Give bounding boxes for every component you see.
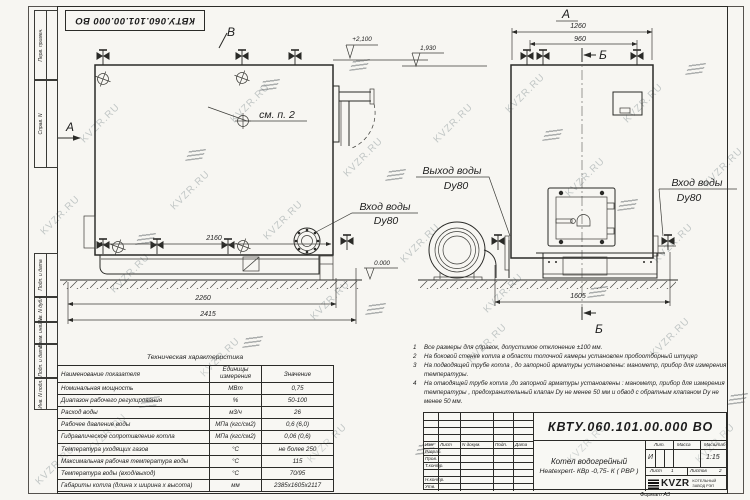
door-sight-glass (577, 215, 590, 227)
dim-1605: 1605 (570, 293, 586, 300)
product-name-line2: Heatexpert- КВр -0,75- К ( РВР ) (539, 468, 638, 475)
company-name-line1: КОТЕЛЬНЫЙ (692, 479, 716, 484)
margin-box: Подп. и дата (34, 344, 58, 378)
tb-header-podp: Подп. (495, 442, 507, 447)
elevation-1930: 1,930 (402, 45, 487, 66)
col-header-name: Наименование показателя (58, 366, 210, 382)
dim-960: 960 (574, 36, 586, 43)
company-logo: KVZR КОТЕЛЬНЫЙ ЗАВОД РЭП (648, 477, 726, 490)
tb-scale-value: 1:15 (706, 454, 720, 461)
dim-2415: 2415 (199, 311, 216, 318)
dim-1260: 1260 (570, 23, 586, 30)
tb-sheet-label: Лист (650, 468, 662, 473)
section-letter: В (227, 25, 235, 39)
panel (613, 92, 642, 115)
tb-header-list: Лист (440, 442, 452, 447)
product-name: Котел водогрейный Heatexpert- КВр -0,75-… (533, 441, 646, 491)
elevation-2100: +2,100 (333, 36, 428, 60)
ground-hatch (420, 281, 676, 289)
furnace-door (548, 188, 615, 246)
flue-elbow (333, 86, 375, 148)
side-view: Выход воды Dy80 Вход воды Dy80 1260 (416, 7, 737, 336)
table-row: Максимальная рабочая температура воды°С1… (58, 455, 333, 467)
table-row: Расход водым3/ч26 (58, 406, 333, 418)
kvzr-logo-text: KVZR (661, 478, 689, 489)
margin-box: Инв. N подл. (34, 378, 58, 410)
tb-header-izm: Изм (425, 442, 434, 447)
valve-icon (492, 235, 505, 250)
ground-hatch (63, 281, 359, 289)
position-mark-icon (93, 69, 114, 90)
fan-duct (484, 235, 509, 278)
tech-table-header: Наименование показателя Единицыизмерения… (58, 366, 333, 382)
tech-table: Наименование показателя Единицыизмерения… (57, 365, 334, 492)
section-b-marker-top: Б (582, 48, 607, 62)
table-row: Диапазон рабочего регулирования%50-100 (58, 394, 333, 406)
tb-prov: Пров. (425, 456, 437, 461)
section-letter: А (65, 120, 74, 134)
tb-lit-label: Лит. (654, 442, 665, 447)
tb-razrab: Разраб. (425, 449, 442, 454)
margin-label: Инв. N подл. (38, 379, 44, 408)
section-a-top-right: А (556, 7, 578, 21)
valve-icon (662, 235, 675, 250)
product-name-line1: Котел водогрейный (551, 457, 627, 466)
tb-header-ndocum: N докум. (462, 442, 481, 447)
tb-nkontr: Н.контр. (425, 477, 444, 482)
front-inlet-label: Вход воды Dy80 (316, 201, 418, 232)
margin-label: Подп. и дата (38, 345, 44, 376)
elevation-text: 0.000 (374, 260, 390, 267)
section-letter: А (561, 7, 570, 21)
col-header-value: Значение (262, 366, 333, 382)
outlet-label-line1: Выход воды (422, 165, 481, 177)
valve-icon (537, 50, 550, 65)
table-row: Габариты котла (длина х ширина х высота)… (58, 479, 333, 491)
callout-see-note-2: см. п. 2 (208, 107, 307, 129)
section-letter: Б (595, 322, 603, 336)
valve-icon (631, 50, 644, 65)
table-row: Гидравлическое сопротивление котлаМПа (к… (58, 430, 333, 442)
note-item: 1Все размеры для справок, допустимое отк… (413, 344, 735, 353)
tb-tkontr: Т.контр. (425, 463, 444, 468)
side-outlet-label: Выход воды Dy80 (416, 165, 510, 236)
table-row: Номинальная мощностьМВт0,75 (58, 382, 333, 394)
table-row: Рабочее давление водыМПа (кгс/см2)0,6 (6… (58, 418, 333, 430)
valve-icon (151, 239, 164, 254)
inlet-label-line1: Вход воды (672, 177, 723, 189)
valve-icon (236, 50, 249, 65)
fan-blower (429, 222, 485, 280)
position-mark-icon (233, 236, 254, 257)
section-a-left: А (58, 120, 80, 138)
table-row: Температура воды (вход/выход)°С70/95 (58, 467, 333, 479)
note-item: 2На боковой стенке котла в области топоч… (413, 353, 735, 362)
inlet-label-line2: Dy80 (374, 215, 399, 227)
note-item: 3На подводящей трубе котла , до запорной… (413, 362, 735, 380)
note-item: 4На отводящей трубе котла ,до запорной а… (413, 380, 735, 407)
valve-icon (222, 239, 235, 254)
tb-utv: Утв. (425, 484, 435, 489)
valve-icon (341, 235, 354, 250)
tb-header-data: Дата (515, 442, 527, 447)
dim-2260: 2260 (194, 295, 211, 302)
inlet-label-line1: Вход воды (360, 201, 411, 213)
col-header-units: Единицыизмерения (210, 366, 262, 382)
table-row: Температура уходящих газов°Сне более 250 (58, 443, 333, 455)
section-letter: Б (599, 48, 607, 62)
position-mark-icon (232, 68, 253, 89)
valve-icon (289, 50, 302, 65)
elevation-text: +2,100 (352, 36, 372, 43)
notes: 1Все размеры для справок, допустимое отк… (413, 344, 735, 407)
callout-text: см. п. 2 (259, 109, 295, 121)
valve-icon (521, 50, 534, 65)
dim-2160: 2160 (205, 235, 222, 242)
position-mark-icon (108, 237, 129, 258)
tb-sheets-label: Листов (690, 468, 707, 473)
tb-lit-value: И (648, 454, 653, 461)
tb-sheet-value: 1 (671, 468, 674, 473)
tb-scale-label: Масштаб (704, 442, 725, 447)
valve-icon (97, 50, 110, 65)
elevation-text: 1,930 (420, 45, 436, 52)
side-inlet: Вход воды Dy80 (653, 177, 737, 256)
outlet-label-line2: Dy80 (444, 180, 469, 192)
elevation-0000: 0.000 (364, 260, 398, 279)
company-name-line2: ЗАВОД РЭП (692, 484, 716, 489)
position-mark-icon (235, 113, 251, 129)
drawing-sheet: KVZR.RU KVZR.RU KVZR.RU KVZR.RU KVZR.RU … (0, 0, 750, 500)
inlet-label-line2: Dy80 (677, 192, 702, 204)
tech-table-title: Техническая характеристика (57, 354, 333, 361)
section-b-top: В (219, 25, 235, 48)
tb-mass-label: Масса (677, 442, 691, 447)
side-base (536, 253, 665, 278)
title-block: Изм Лист N докум. Подп. Дата Разраб. Про… (423, 412, 727, 490)
valve-icon (97, 239, 110, 254)
kvzr-logo-icon (648, 479, 659, 489)
tb-sheets-value: 2 (719, 468, 722, 473)
drawing-code: КВТУ.060.101.00.000 ВО (533, 413, 728, 441)
format-note: Формат А3 (640, 492, 670, 498)
section-b-marker-bottom: Б (582, 307, 603, 336)
boiler-views-drawing: см. п. 2 Вход воды Dy80 2160 (0, 0, 750, 345)
